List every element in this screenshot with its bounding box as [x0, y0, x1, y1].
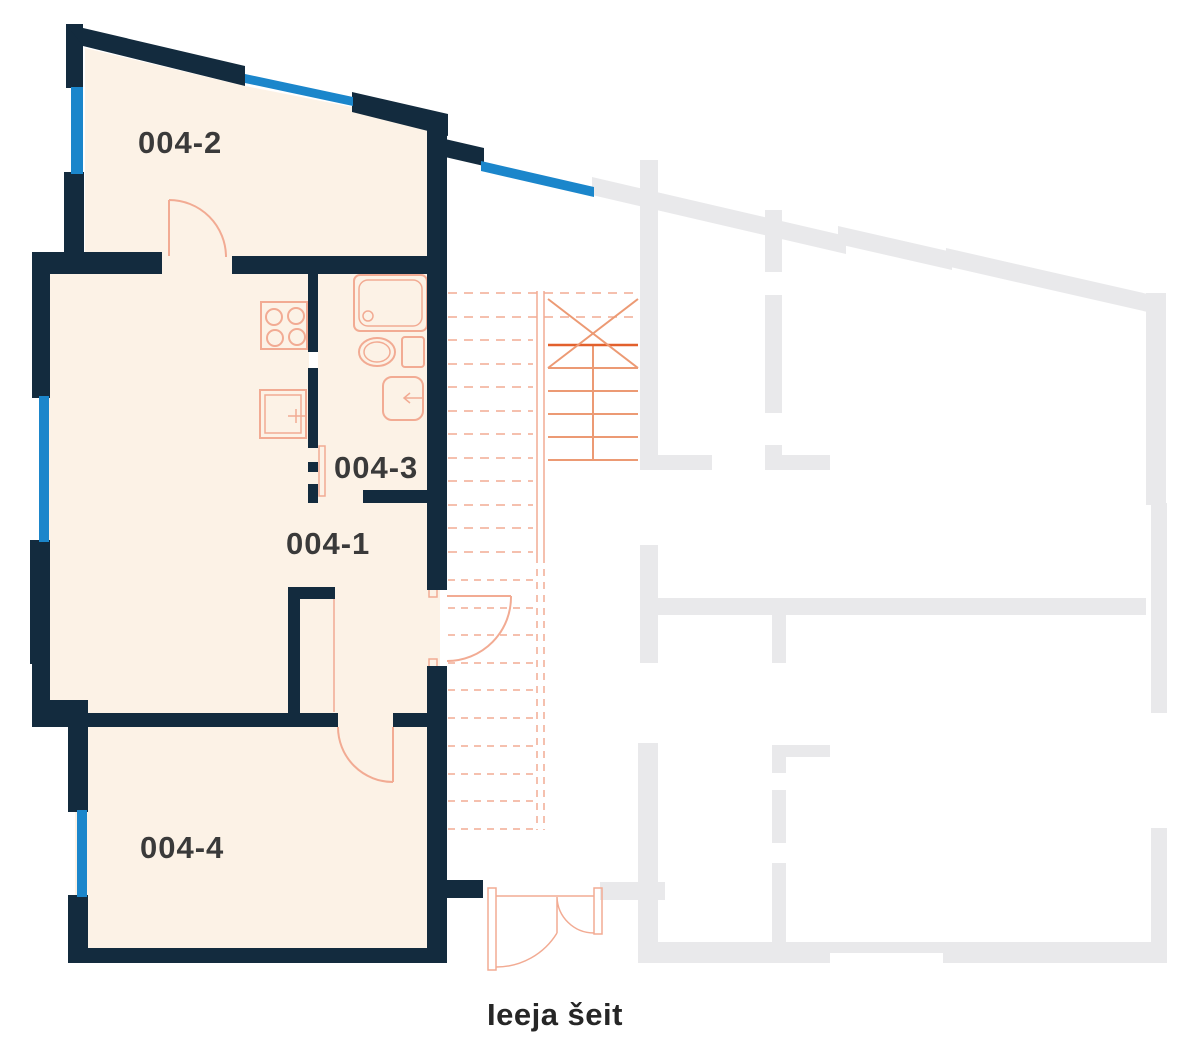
gray-wall	[1151, 828, 1167, 954]
window-segment	[481, 161, 594, 197]
room-label-004-1: 004-1	[286, 526, 370, 561]
gray-wall	[782, 745, 830, 757]
wall	[393, 713, 427, 727]
wall-niche	[309, 352, 318, 368]
wall	[32, 252, 162, 274]
window-segment	[77, 810, 87, 897]
entrance-door-swing	[496, 896, 594, 967]
window-segment	[71, 87, 83, 174]
gray-wall	[838, 226, 952, 270]
wall	[445, 880, 483, 898]
gray-wall	[943, 942, 1167, 963]
wall	[427, 116, 447, 590]
room-label-004-3: 004-3	[334, 450, 418, 485]
stair-divider	[537, 291, 544, 556]
wall	[232, 256, 427, 274]
gray-wall	[638, 942, 830, 963]
stair-treads-solid	[548, 345, 638, 460]
wall	[32, 662, 50, 704]
gray-wall	[638, 743, 658, 942]
room-label-004-2: 004-2	[138, 125, 222, 160]
entrance-label: Ieeja šeit	[487, 997, 623, 1032]
wall	[308, 368, 318, 448]
stair-divider-dashed	[537, 556, 544, 830]
gray-wall	[640, 615, 658, 663]
wall	[68, 727, 88, 812]
wall	[68, 895, 88, 950]
gray-wall	[640, 160, 658, 470]
gray-wall	[772, 790, 786, 843]
wall	[427, 666, 447, 962]
wall	[308, 462, 318, 472]
gray-wall	[772, 863, 786, 943]
window-segment	[39, 396, 49, 542]
apartment-unit[interactable]	[30, 24, 638, 970]
room-area-004-4[interactable]	[75, 720, 440, 956]
gray-wall	[640, 455, 712, 470]
wall	[308, 268, 318, 352]
gray-wall	[640, 545, 658, 598]
gray-wall	[592, 177, 846, 254]
gray-wall	[828, 942, 946, 953]
gray-wall	[765, 210, 782, 272]
wall	[68, 948, 447, 963]
gray-wall	[1146, 293, 1166, 505]
gray-wall	[640, 598, 1146, 615]
room-label-004-4: 004-4	[140, 830, 224, 865]
inactive-building	[592, 160, 1167, 963]
wall	[288, 587, 300, 717]
wall	[64, 172, 84, 256]
gray-wall	[1151, 503, 1167, 713]
wall	[30, 540, 50, 664]
wall	[32, 700, 88, 727]
floor-plan: 004-2 004-3 004-1 004-4 Ieeja šeit	[0, 0, 1200, 1064]
building-entrance-door	[488, 888, 602, 970]
gray-wall	[946, 248, 1152, 313]
gray-wall	[765, 295, 782, 413]
gray-wall	[772, 615, 786, 663]
floorplan-svg: 004-2 004-3 004-1 004-4 Ieeja šeit	[0, 0, 1200, 1064]
wall	[445, 139, 484, 166]
stair-treads-dashed-lower	[448, 580, 533, 829]
wall	[88, 713, 338, 727]
staircase	[448, 291, 638, 830]
wall	[363, 490, 427, 503]
unit-entry-door-swing	[447, 596, 511, 661]
door-jamb	[488, 888, 496, 970]
gray-wall	[765, 455, 830, 470]
wall	[32, 268, 50, 398]
wall	[308, 484, 318, 503]
stair-treads-dashed-upper	[448, 293, 638, 552]
